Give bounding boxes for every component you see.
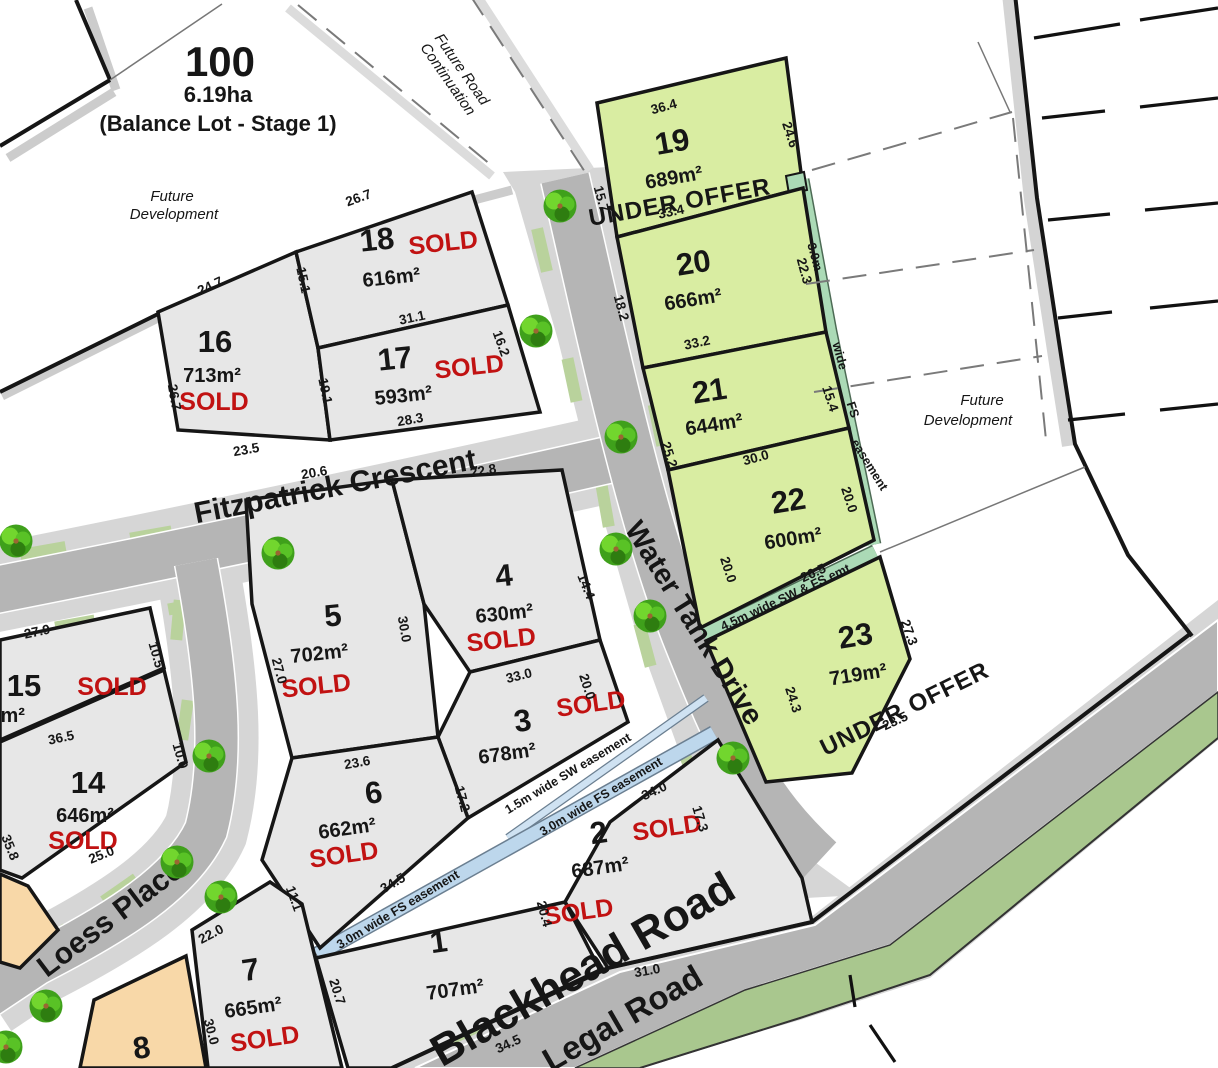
lot-19-number: 19 [652, 121, 692, 161]
tree-icon [544, 190, 577, 223]
tree-icon [262, 537, 295, 570]
lot-17-number: 17 [376, 339, 414, 377]
subdivision-map: 100 6.19ha (Balance Lot - Stage 1) Futur… [0, 0, 1218, 1068]
subdivision-plan-page: 100 6.19ha (Balance Lot - Stage 1) Futur… [0, 0, 1218, 1068]
measurement: 23.5 [232, 440, 261, 459]
lot-16-status: SOLD [179, 388, 248, 416]
lot-14-area: 646m² [56, 805, 114, 827]
development-east-boundary [1015, 0, 1192, 636]
lot-23-number: 23 [836, 616, 876, 656]
boundary-road-band [1008, 0, 1068, 446]
lot-100-area: 6.19ha [184, 82, 253, 107]
lot-5-number: 5 [322, 597, 343, 634]
measurement: 26.7 [344, 186, 374, 209]
tree-icon [205, 881, 238, 914]
lot-100-note: (Balance Lot - Stage 1) [99, 111, 336, 136]
tree-icon [30, 990, 63, 1023]
tree-icon [193, 740, 226, 773]
tree-icon [161, 846, 194, 879]
tree-icon [717, 742, 750, 775]
lot-15-area: 650m² [0, 705, 25, 727]
lot-100-number: 100 [185, 38, 255, 85]
lot-20-number: 20 [674, 243, 714, 283]
future-dev-left-1: Future [150, 188, 193, 205]
lot-2-number: 2 [588, 814, 610, 851]
lot-15-number: 15 [7, 668, 41, 703]
future-dev-left-2: Development [130, 206, 219, 223]
lot-21-number: 21 [690, 371, 730, 411]
tree-icon [0, 525, 33, 558]
lot-15-status: SOLD [77, 673, 146, 701]
lot-18-number: 18 [358, 220, 396, 258]
lot-16-number: 16 [198, 324, 232, 359]
measurement: 26.7 [165, 383, 184, 411]
lot100-south-boundary [0, 314, 158, 392]
tree-icon [605, 421, 638, 454]
future-dev-right-2: Development [924, 412, 1013, 429]
tree-icon [600, 533, 633, 566]
lot-16-area: 713m² [183, 365, 241, 387]
lot-14-number: 14 [71, 765, 106, 800]
tree-icon [520, 315, 553, 348]
tree-icon [634, 600, 667, 633]
lot-22-number: 22 [769, 481, 809, 521]
tree-icon [0, 1031, 23, 1064]
future-dev-right-1: Future [960, 392, 1003, 409]
